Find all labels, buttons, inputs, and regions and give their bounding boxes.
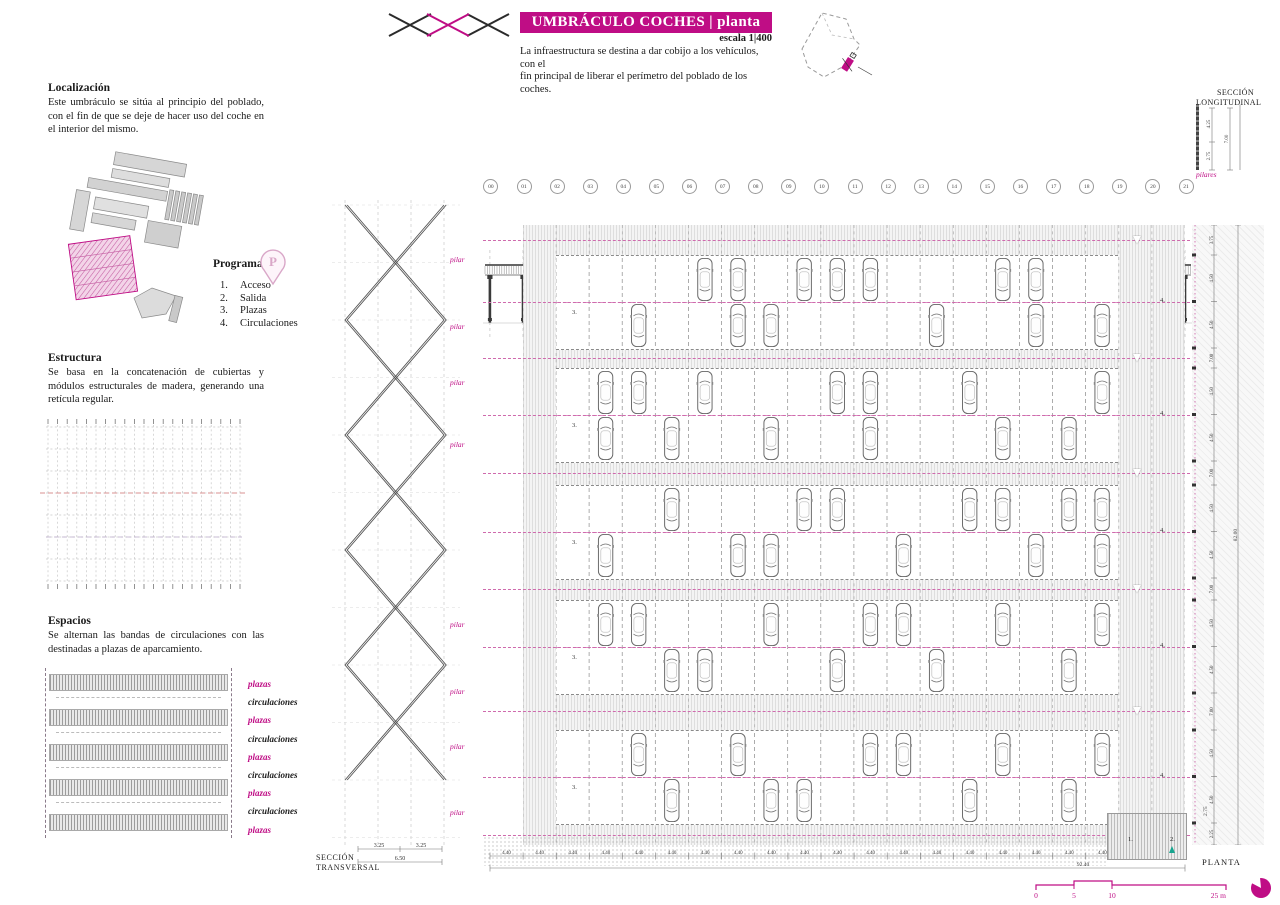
pilar-label: pilar: [450, 440, 465, 449]
plazas-strip: [49, 709, 228, 726]
firm-logo-icon: [1248, 874, 1274, 900]
svg-text:3.25: 3.25: [416, 843, 427, 849]
grid-bubble-07: 07: [715, 179, 730, 194]
espacios-label-plazas: plazas: [248, 788, 338, 806]
grid-bubble-08: 08: [748, 179, 763, 194]
annex-side-dimension: 2.75: [1203, 806, 1209, 816]
grid-bubble-14: 14: [947, 179, 962, 194]
grid-bubble-03: 03: [583, 179, 598, 194]
label-line1: SECCIÓN: [316, 853, 354, 862]
svg-text:4.40: 4.40: [635, 851, 644, 856]
band-centerline: [483, 777, 1195, 778]
band-centerline: [483, 415, 1195, 416]
svg-text:4.50: 4.50: [1210, 273, 1215, 282]
circulation-arrow-icon: [1133, 469, 1141, 477]
pilar-label: pilar: [450, 378, 465, 387]
svg-text:3.: 3.: [572, 422, 577, 429]
svg-text:4.50: 4.50: [1210, 665, 1215, 674]
svg-text:4.40: 4.40: [535, 851, 544, 856]
description-line2: fin principal de liberar el perímetro de…: [520, 71, 774, 96]
grid-bubble-16: 16: [1013, 179, 1028, 194]
circulation-number: 4.: [1160, 527, 1165, 534]
exit-number: 2.: [1170, 836, 1175, 843]
grid-bubble-11: 11: [848, 179, 863, 194]
svg-text:4.40: 4.40: [601, 851, 610, 856]
svg-text:0: 0: [1034, 891, 1038, 900]
access-number: 1.: [1128, 836, 1133, 843]
svg-text:7.00: 7.00: [1225, 134, 1230, 143]
svg-text:4.40: 4.40: [866, 851, 875, 856]
svg-text:4.40: 4.40: [1098, 851, 1107, 856]
grid-bubble-21: 21: [1179, 179, 1194, 194]
espacios-body: Se alternan las bandas de circulaciones …: [48, 629, 264, 656]
svg-text:4.25: 4.25: [1207, 119, 1212, 128]
svg-text:4.50: 4.50: [1210, 748, 1215, 757]
programa-item-label: Acceso: [240, 280, 271, 293]
seccion-transversal-drawing: [330, 200, 470, 855]
espacios-label-circulaciones: circulaciones: [248, 697, 338, 715]
svg-text:7.00: 7.00: [1210, 707, 1215, 716]
circulaciones-strip: [56, 802, 221, 803]
grid-bubble-17: 17: [1046, 179, 1061, 194]
grid-bubble-09: 09: [781, 179, 796, 194]
svg-text:4.50: 4.50: [1210, 618, 1215, 627]
espacios-label-plazas: plazas: [248, 825, 338, 843]
svg-text:2.75: 2.75: [1207, 151, 1212, 160]
pilares-label: pilares: [1196, 170, 1217, 179]
svg-text:3.: 3.: [572, 539, 577, 546]
svg-text:10: 10: [1108, 891, 1116, 900]
grid-bubble-02: 02: [550, 179, 565, 194]
grid-bubble-18: 18: [1079, 179, 1094, 194]
svg-text:4.40: 4.40: [734, 851, 743, 856]
svg-text:7.00: 7.00: [1210, 353, 1215, 362]
svg-text:4.40: 4.40: [502, 851, 511, 856]
pilar-label: pilar: [450, 808, 465, 817]
svg-text:6.50: 6.50: [395, 856, 406, 862]
espacios-label-circulaciones: circulaciones: [248, 734, 338, 752]
svg-text:4.40: 4.40: [1032, 851, 1041, 856]
parking-band: 3.: [556, 368, 1118, 463]
pilar-label: pilar: [450, 620, 465, 629]
grid-bubble-20: 20: [1145, 179, 1160, 194]
scale-note: escala 1|400: [520, 33, 772, 44]
estructura-body: Se basa en la concatenación de cubiertas…: [48, 366, 264, 407]
circulation-number: 4.: [1160, 772, 1165, 779]
svg-text:2.25: 2.25: [1210, 829, 1215, 838]
espacios-label-plazas: plazas: [248, 752, 338, 770]
svg-text:7.00: 7.00: [1210, 584, 1215, 593]
presentation-board: { "accent": "#BF0D85", "teal": "#17a58f"…: [0, 0, 1280, 905]
plan-bottom-dimension-chain: 4.404.404.404.404.404.404.404.404.404.40…: [483, 848, 1193, 876]
parking-band: 3.: [556, 255, 1118, 350]
svg-text:4.40: 4.40: [668, 851, 677, 856]
programa-item-number: 1.: [220, 280, 240, 293]
svg-text:4.50: 4.50: [1210, 795, 1215, 804]
svg-text:4.50: 4.50: [1210, 320, 1215, 329]
grid-bubble-01: 01: [517, 179, 532, 194]
circulaciones-strip: [56, 697, 221, 698]
plazas-strip: [49, 814, 228, 831]
svg-text:3.: 3.: [572, 784, 577, 791]
localizacion-body: Este umbráculo se sitúa al principio del…: [48, 96, 264, 137]
grid-bubble-12: 12: [881, 179, 896, 194]
svg-text:4.50: 4.50: [1210, 386, 1215, 395]
svg-text:5: 5: [1072, 891, 1076, 900]
programa-item-number: 3.: [220, 305, 240, 318]
plazas-strip: [49, 779, 228, 796]
pilar-label: pilar: [450, 322, 465, 331]
description-line1: La infraestructura se destina a dar cobi…: [520, 46, 774, 71]
svg-text:4.50: 4.50: [1210, 433, 1215, 442]
grid-bubble-10: 10: [814, 179, 829, 194]
programa-item: 3.Plazas: [220, 305, 330, 318]
circulation-number: 4.: [1160, 410, 1165, 417]
entry-arrow-icon: [1169, 846, 1175, 853]
graphic-scale-bar: 051025 m: [1028, 874, 1243, 900]
band-centerline: [483, 302, 1195, 303]
programa-list: 1.Acceso2.Salida3.Plazas4.Circulaciones: [220, 280, 330, 330]
parking-band: 3.: [556, 485, 1118, 580]
espacios-label-plazas: plazas: [248, 715, 338, 733]
espacios-label-circulaciones: circulaciones: [248, 806, 338, 824]
localizacion-heading: Localización: [48, 82, 268, 94]
plazas-strip: [49, 744, 228, 761]
grid-bubble-13: 13: [914, 179, 929, 194]
circulation-arrow-icon: [1133, 354, 1141, 362]
circulation-centerline: [483, 589, 1195, 590]
svg-text:82.00: 82.00: [1233, 529, 1239, 542]
svg-text:3.25: 3.25: [374, 843, 385, 849]
svg-text:92.40: 92.40: [1077, 862, 1090, 868]
transversal-dimensions: 3.253.256.50: [350, 841, 454, 873]
site-plan-drawing: [56, 138, 216, 330]
circulation-centerline: [483, 358, 1195, 359]
longitudinal-dimensions: 4.252.757.00: [1196, 104, 1248, 174]
espacios-label-plazas: plazas: [248, 679, 338, 697]
band-centerline: [483, 532, 1195, 533]
espacios-band-labels: plazascirculacionesplazascirculacionespl…: [248, 679, 338, 843]
circulation-centerline: [483, 240, 1195, 241]
sheet-title-bar: UMBRÁCULO COCHES | planta: [520, 12, 772, 33]
circulation-centerline: [483, 473, 1195, 474]
programa-item: 4.Circulaciones: [220, 318, 330, 331]
circulation-number: 4.: [1160, 297, 1165, 304]
plazas-strip: [49, 674, 228, 691]
access-exit-block: 1. 2.: [1107, 813, 1187, 860]
grid-bubble-05: 05: [649, 179, 664, 194]
svg-text:4.50: 4.50: [1210, 550, 1215, 559]
svg-text:4.40: 4.40: [899, 851, 908, 856]
svg-text:4.40: 4.40: [999, 851, 1008, 856]
grid-bubble-00: 00: [483, 179, 498, 194]
svg-text:4.40: 4.40: [701, 851, 710, 856]
svg-text:4.40: 4.40: [966, 851, 975, 856]
svg-text:4.40: 4.40: [767, 851, 776, 856]
espacios-heading: Espacios: [48, 615, 91, 627]
circulation-arrow-icon: [1133, 585, 1141, 593]
sheet-description: La infraestructura se destina a dar cobi…: [520, 46, 774, 96]
planta-label: PLANTA: [1202, 857, 1264, 867]
parking-band: 3.: [556, 730, 1118, 825]
svg-text:4.40: 4.40: [1065, 851, 1074, 856]
programa-item-label: Plazas: [240, 305, 267, 318]
espacios-label-circulaciones: circulaciones: [248, 770, 338, 788]
grid-bubble-19: 19: [1112, 179, 1127, 194]
svg-text:4.40: 4.40: [932, 851, 941, 856]
programa-item: 2.Salida: [220, 293, 330, 306]
sheet-title: UMBRÁCULO COCHES | planta: [532, 14, 761, 31]
programa-item-label: Salida: [240, 293, 266, 306]
parking-plan-drawing: 3.4.3.4.3.4.3.4.3.4.: [523, 225, 1185, 845]
svg-text:P: P: [269, 254, 277, 269]
svg-text:4.40: 4.40: [800, 851, 809, 856]
studio-logo-icon: [385, 6, 510, 44]
svg-text:4.50: 4.50: [1210, 503, 1215, 512]
grid-bubble-row: 0001020304050607080910111213141516171819…: [483, 179, 1195, 193]
programa-item-label: Circulaciones: [240, 318, 298, 331]
plan-right-dimension-chain: 3.754.504.507.004.504.507.004.504.507.00…: [1192, 225, 1264, 845]
svg-text:7.00: 7.00: [1210, 468, 1215, 477]
circulation-number: 4.: [1160, 642, 1165, 649]
svg-text:3.: 3.: [572, 654, 577, 661]
key-plan-sketch: [788, 5, 888, 87]
label-line1: SECCIÓN: [1217, 88, 1254, 97]
circulation-arrow-icon: [1133, 707, 1141, 715]
grid-bubble-06: 06: [682, 179, 697, 194]
programa-item-number: 4.: [220, 318, 240, 331]
circulation-centerline: [483, 711, 1195, 712]
pilar-label: pilar: [450, 742, 465, 751]
grid-bubble-04: 04: [616, 179, 631, 194]
programa-item: 1.Acceso: [220, 280, 330, 293]
circulaciones-strip: [56, 767, 221, 768]
pilar-label: pilar: [450, 255, 465, 264]
estructura-heading: Estructura: [48, 352, 102, 364]
espacios-strip-diagram: [45, 668, 232, 838]
structure-grid-diagram: [40, 413, 248, 597]
pilar-label: pilar: [450, 687, 465, 696]
svg-text:3.75: 3.75: [1210, 235, 1215, 244]
svg-text:4.40: 4.40: [568, 851, 577, 856]
programa-item-number: 2.: [220, 293, 240, 306]
parking-band: 3.: [556, 600, 1118, 695]
svg-text:4.40: 4.40: [833, 851, 842, 856]
grid-bubble-15: 15: [980, 179, 995, 194]
svg-text:25 m: 25 m: [1211, 891, 1226, 900]
circulation-arrow-icon: [1133, 236, 1141, 244]
circulaciones-strip: [56, 732, 221, 733]
band-centerline: [483, 647, 1195, 648]
svg-text:3.: 3.: [572, 309, 577, 316]
